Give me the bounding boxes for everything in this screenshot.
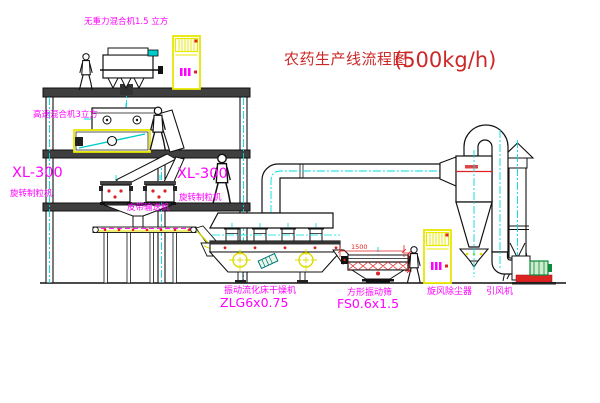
belt	[93, 227, 196, 233]
label-fan-name: 引风机	[486, 285, 513, 297]
fan-base-plate	[512, 282, 556, 285]
cyclone-red-mark	[465, 165, 478, 169]
label-granulator-right-name: 旋转制粒机	[179, 192, 222, 203]
bucket-elevator-2	[424, 230, 451, 283]
mixer2-drive	[75, 137, 83, 146]
mixer-motor-box	[148, 50, 158, 56]
mixer-funnel	[108, 78, 118, 88]
label-belt-conveyor: 皮带输送机	[127, 202, 170, 213]
person-figure	[79, 54, 92, 90]
drawing-title: 农药生产线流程图 (500kg/h)	[284, 48, 496, 72]
belt-conveyor	[93, 227, 197, 283]
title-name: 农药生产线流程图	[284, 50, 408, 68]
dryer-hood	[210, 213, 333, 228]
mixer-top-cover	[108, 48, 148, 55]
bucket-elevator-1	[173, 36, 200, 89]
label-granulator-left-name: 旋转制粒机	[10, 188, 53, 199]
square-vibrating-sieve	[338, 245, 415, 284]
label-granulator-right-model: XL-300	[177, 166, 228, 182]
gravity-mixer	[100, 48, 163, 110]
dimension-text: 1500	[351, 243, 368, 251]
mixer2-body	[92, 108, 160, 130]
label-speed-mixer: 高速混合机3立方	[33, 109, 98, 120]
mixer-shaft-cap	[158, 66, 163, 74]
label-dryer-model: ZLG6x0.75	[220, 295, 288, 310]
mixer2-hub	[108, 137, 117, 146]
mixer-body	[103, 55, 153, 78]
fan-base-red	[516, 275, 552, 282]
flow-diagram-canvas: 无重力混合机1.5 立方 高速混合机3立方 XL-300 旋转制粒机 XL-30…	[0, 0, 600, 403]
label-cyclone-name: 旋风除尘器	[427, 285, 472, 297]
roof-slab	[43, 88, 250, 97]
label-granulator-left-model: XL-300	[12, 165, 63, 181]
label-gravity-mixer: 无重力混合机1.5 立方	[84, 16, 168, 27]
process-flow-drawing: 无重力混合机1.5 立方 高速混合机3立方 XL-300 旋转制粒机 XL-30…	[0, 0, 600, 403]
induced-draft-fan	[512, 256, 556, 285]
label-sieve-model: FS0.6x1.5	[337, 296, 399, 311]
mixer-funnel	[134, 78, 144, 88]
cyclone-inlet	[440, 157, 456, 186]
title-capacity: (500kg/h)	[394, 48, 496, 72]
